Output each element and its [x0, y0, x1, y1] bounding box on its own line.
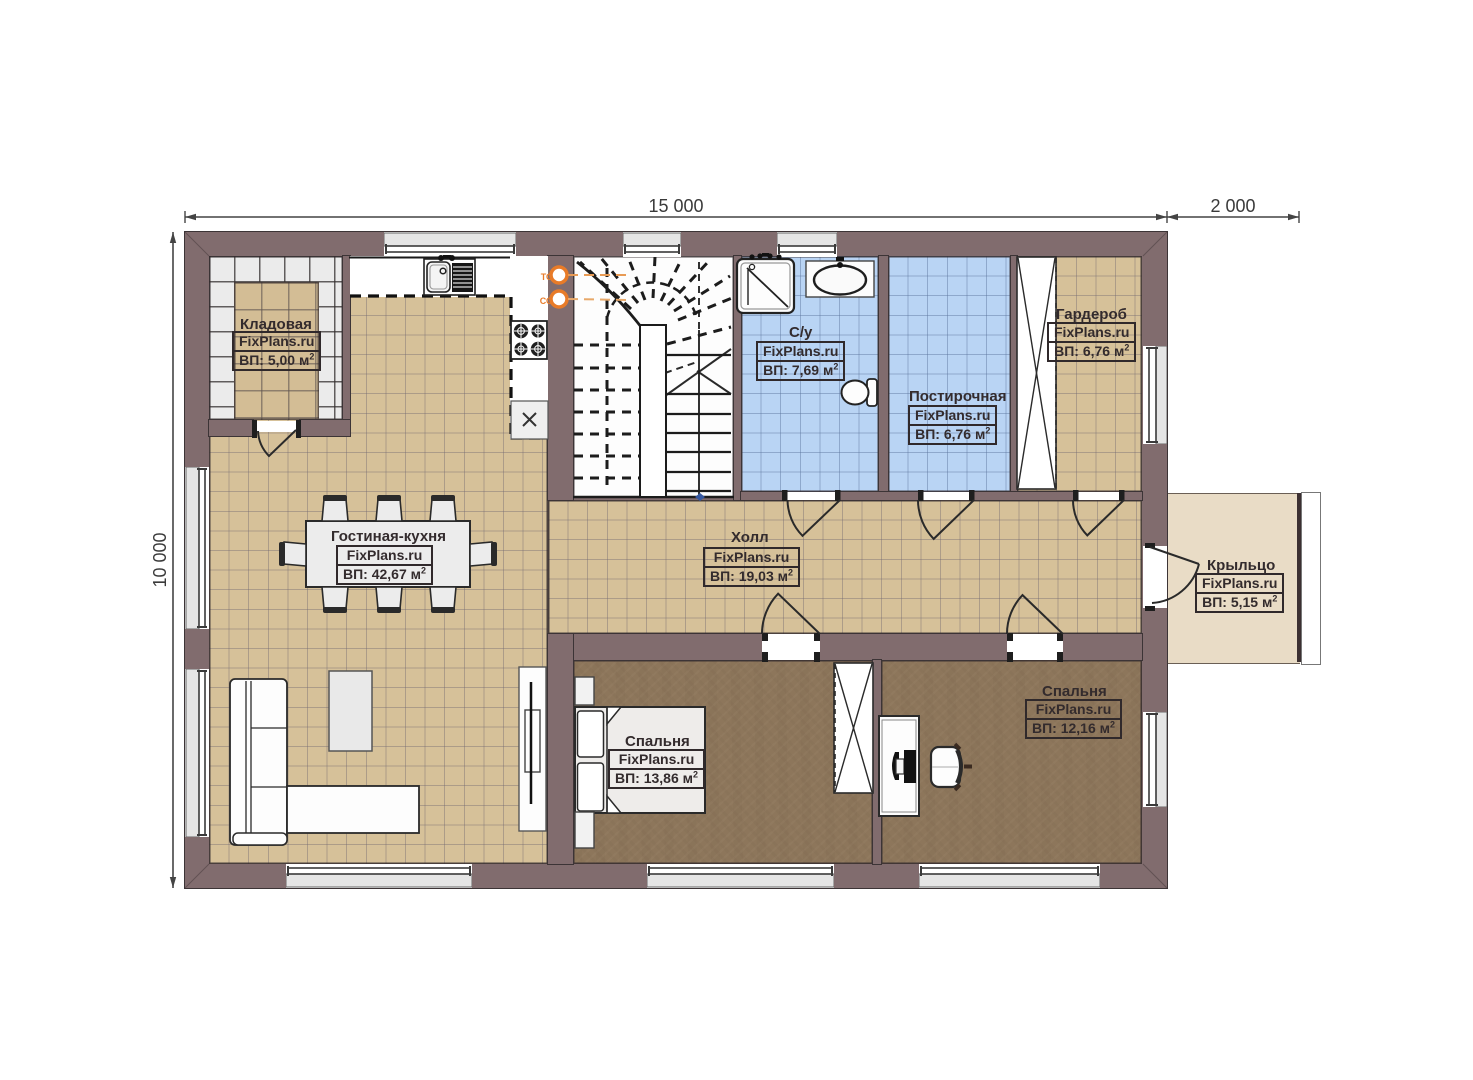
svg-text:ТО: ТО [541, 272, 553, 282]
svg-text:СО: СО [540, 296, 553, 306]
